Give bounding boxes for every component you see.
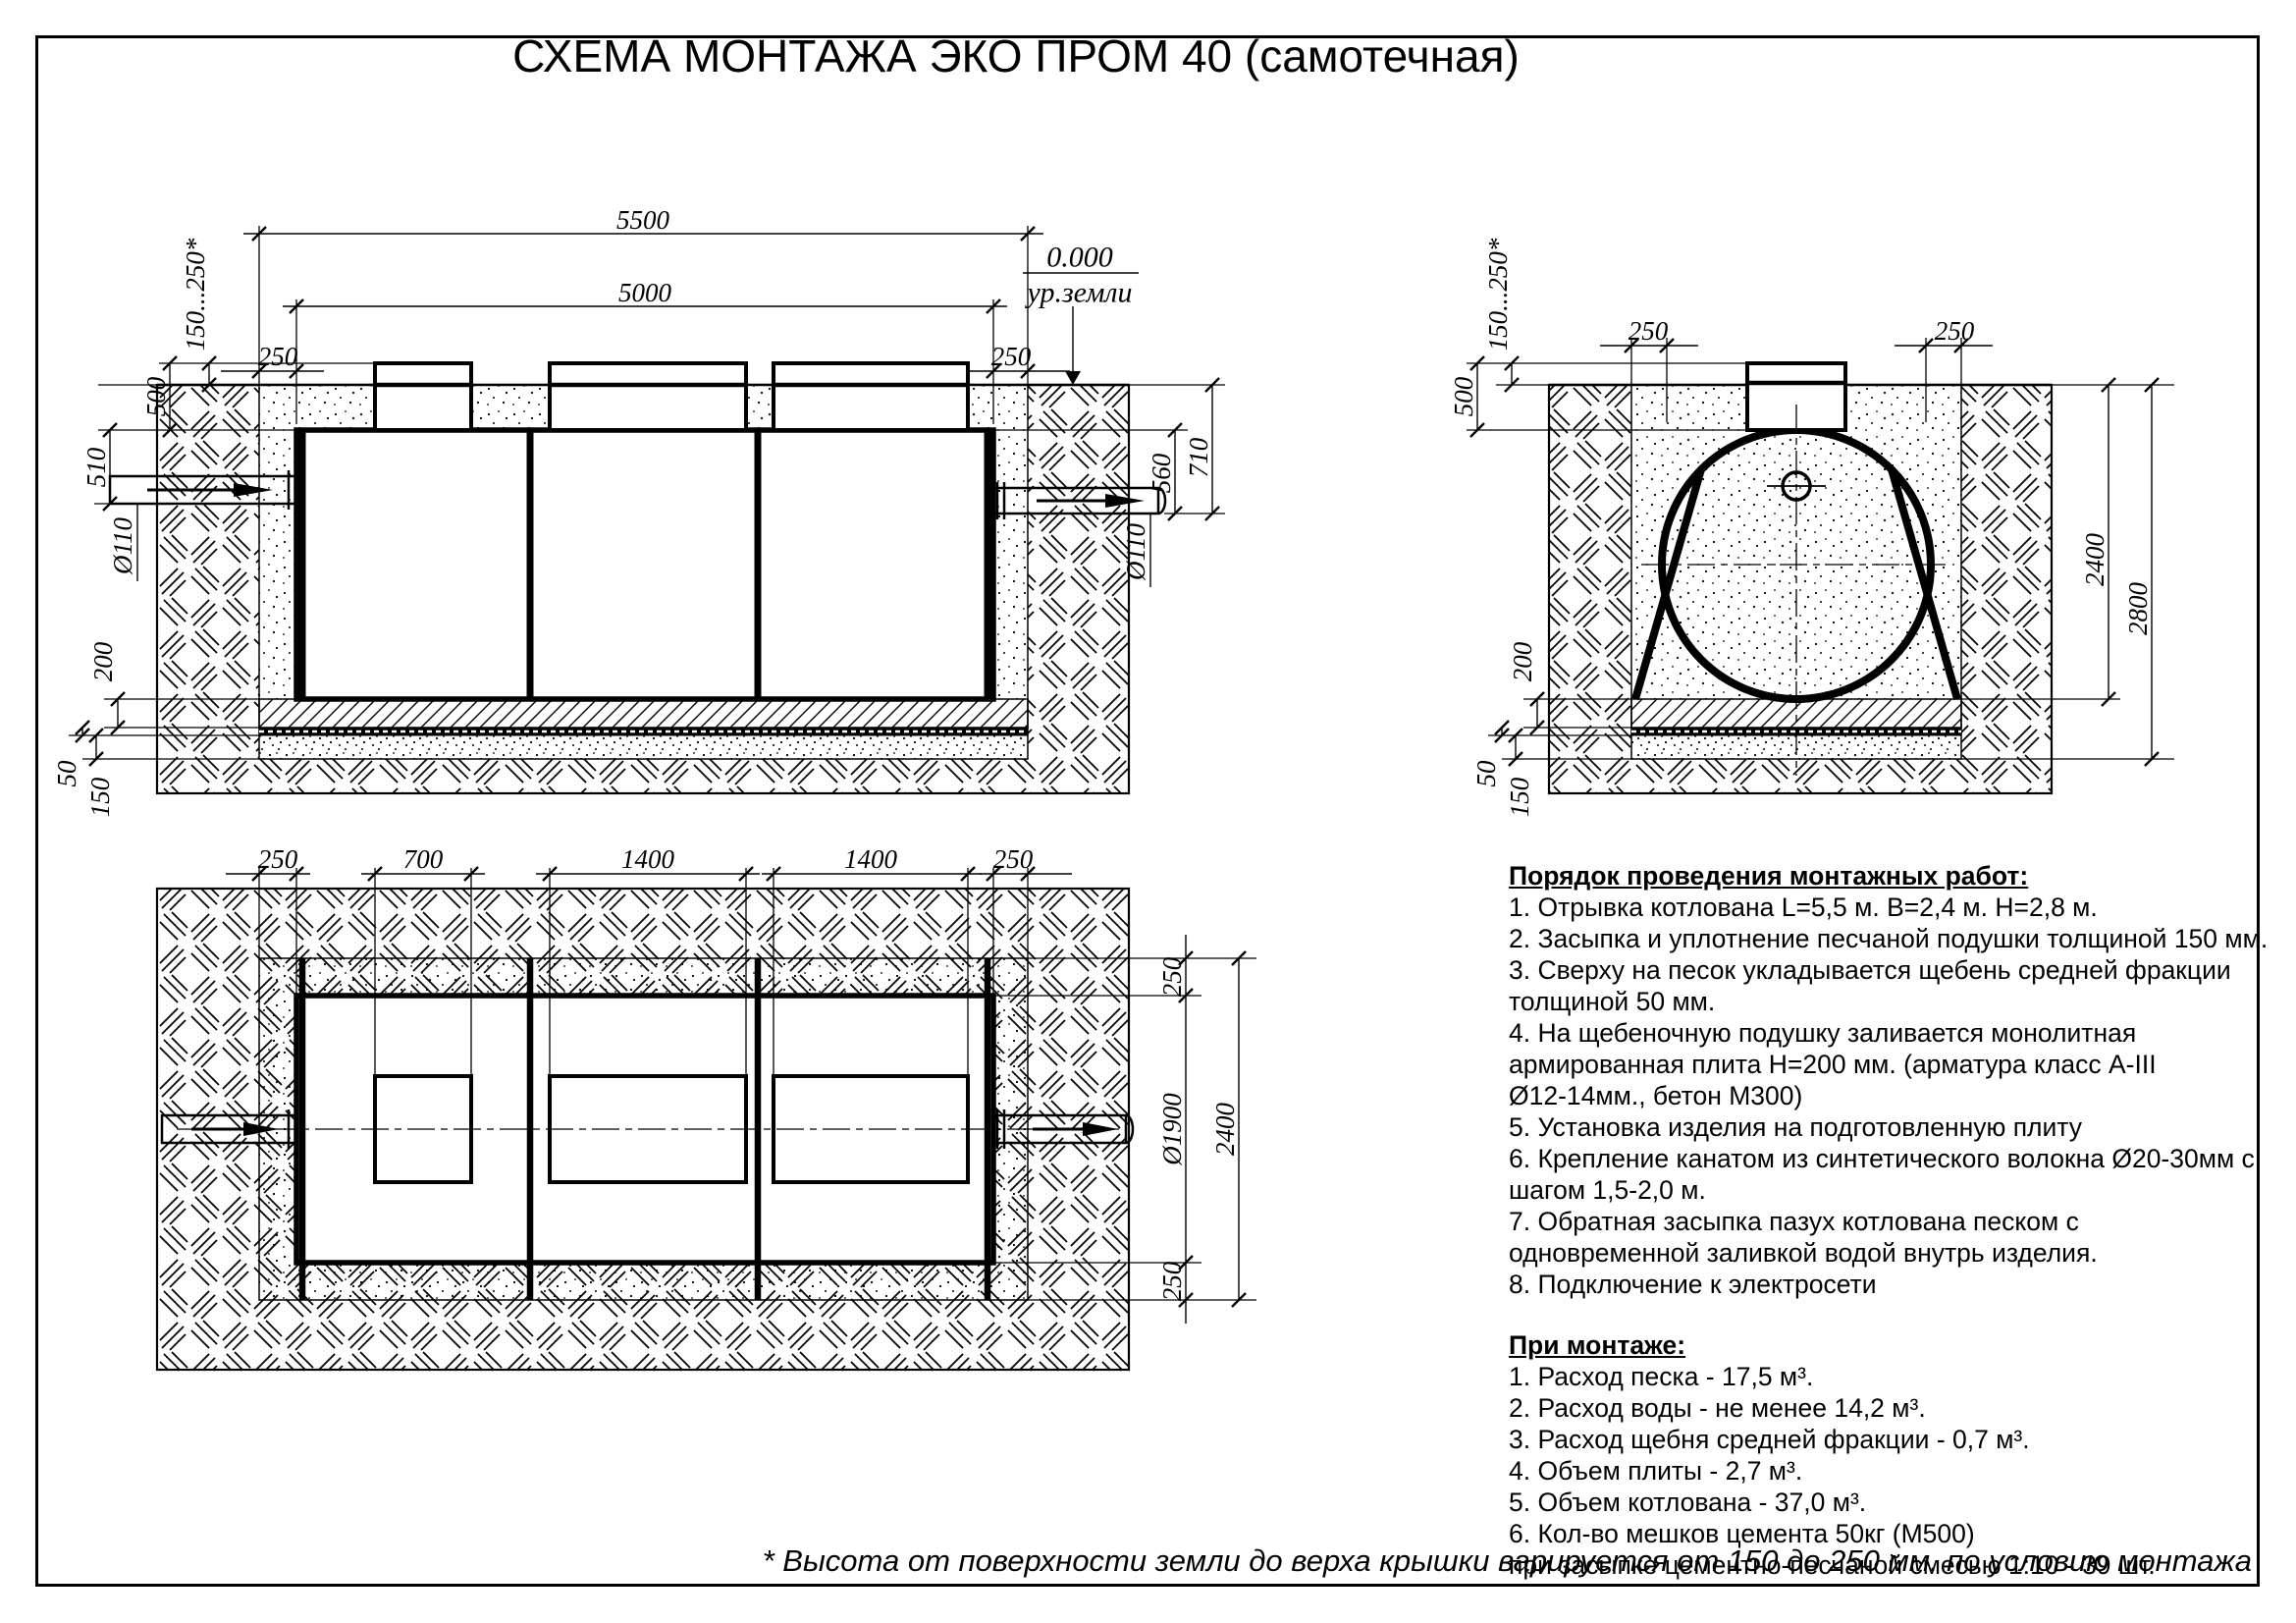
work-order-item: 2. Засыпка и уплотнение песчаной подушки…	[1509, 923, 2284, 954]
dim-inlet-dia: Ø110	[108, 517, 137, 575]
dim-inlet-drop: 510	[81, 447, 111, 487]
dim-sand: 150	[85, 777, 115, 817]
dim-slab: 200	[88, 641, 118, 681]
cover-1	[375, 363, 471, 430]
installation-item: 3. Расход щебня средней фракции - 0,7 м³…	[1509, 1424, 2284, 1455]
installation-notes: Порядок проведения монтажных работ: 1. О…	[1509, 860, 2284, 1581]
dim-gap-right: 250	[993, 844, 1034, 874]
work-order-item: 8. Подключение к электросети	[1509, 1269, 2284, 1300]
end-view-section: 500 150...250* 250 250 2400	[1449, 238, 2174, 817]
level-value: 0.000	[1046, 242, 1113, 274]
dim-depth-to-slab: 2400	[2080, 533, 2109, 587]
dim-tank-length: 5000	[618, 278, 672, 307]
dim-gap-bottom: 250	[1157, 1261, 1187, 1301]
work-order-item: 7. Обратная засыпка пазух котлована песк…	[1509, 1206, 2284, 1269]
dim-hatch-small: 700	[403, 844, 444, 874]
dim-outlet-top: 560	[1147, 453, 1176, 493]
dim-neck-height: 500	[141, 376, 171, 416]
dim-sand: 150	[1505, 777, 1534, 817]
dim-pit-length: 5500	[616, 205, 670, 235]
dim-outlet-dia: Ø110	[1121, 523, 1150, 581]
work-order-item: 3. Сверху на песок укладывается щебень с…	[1509, 954, 2284, 1017]
dim-cover-height: 150...250*	[1483, 238, 1513, 351]
side-view-section: 5500 5000 250 250 500 150...250*	[52, 205, 1225, 817]
installation-item: 5. Объем котлована - 37,0 м³.	[1509, 1487, 2284, 1518]
dim-hatch-mid: 1400	[621, 844, 675, 874]
dim-tank-dia: Ø1900	[1157, 1093, 1187, 1166]
installation-heading: При монтаже:	[1509, 1329, 2284, 1361]
dim-pit-width: 2400	[1210, 1103, 1240, 1157]
dim-gravel: 50	[52, 760, 81, 787]
tank-body	[296, 430, 993, 699]
dim-pit-depth: 2800	[2123, 582, 2153, 636]
concrete-slab	[259, 699, 1028, 728]
installation-item: 2. Расход воды - не менее 14,2 м³.	[1509, 1392, 2284, 1424]
dim-hatch-right: 1400	[844, 844, 898, 874]
gravel-layer	[259, 735, 1028, 759]
dim-neck-height: 500	[1449, 376, 1478, 416]
dim-gap-left: 250	[1629, 316, 1669, 346]
dim-gap-right: 250	[991, 342, 1032, 371]
installation-item: 1. Расход песка - 17,5 м³.	[1509, 1361, 2284, 1392]
plan-view: 250 700 1400 1400 250 25	[157, 844, 1256, 1370]
work-order-item: 5. Установка изделия на подготовленную п…	[1509, 1111, 2284, 1143]
work-order-item: 4. На щебеночную подушку заливается моно…	[1509, 1017, 2284, 1111]
dim-cover-height: 150...250*	[181, 238, 210, 351]
level-label: ур.земли	[1025, 277, 1133, 309]
work-order-item: 6. Крепление канатом из синтетического в…	[1509, 1143, 2284, 1206]
cover-2	[550, 363, 746, 430]
dim-gap-left: 250	[258, 342, 298, 371]
installation-item: 4. Объем плиты - 2,7 м³.	[1509, 1455, 2284, 1487]
dim-outlet-drop: 710	[1184, 437, 1213, 477]
work-order-item: 1. Отрывка котлована L=5,5 м. B=2,4 м. H…	[1509, 892, 2284, 923]
dim-gravel: 50	[1471, 760, 1501, 787]
dim-slab: 200	[1508, 641, 1537, 681]
dim-gap-top: 250	[1157, 956, 1187, 997]
level-triangle-icon	[1065, 371, 1081, 385]
dim-gap-left: 250	[258, 844, 298, 874]
dim-gap-right: 250	[1935, 316, 1975, 346]
drawing-sheet: СХЕМА МОНТАЖА ЭКО ПРОМ 40 (самотечная)	[0, 0, 2296, 1623]
footnote: * Высота от поверхности земли до верха к…	[491, 1543, 2252, 1579]
cover-3	[774, 363, 968, 430]
work-order-heading: Порядок проведения монтажных работ:	[1509, 860, 2284, 892]
ground-level-mark: 0.000 ур.земли	[1023, 242, 1139, 386]
tank-covers	[375, 363, 968, 430]
